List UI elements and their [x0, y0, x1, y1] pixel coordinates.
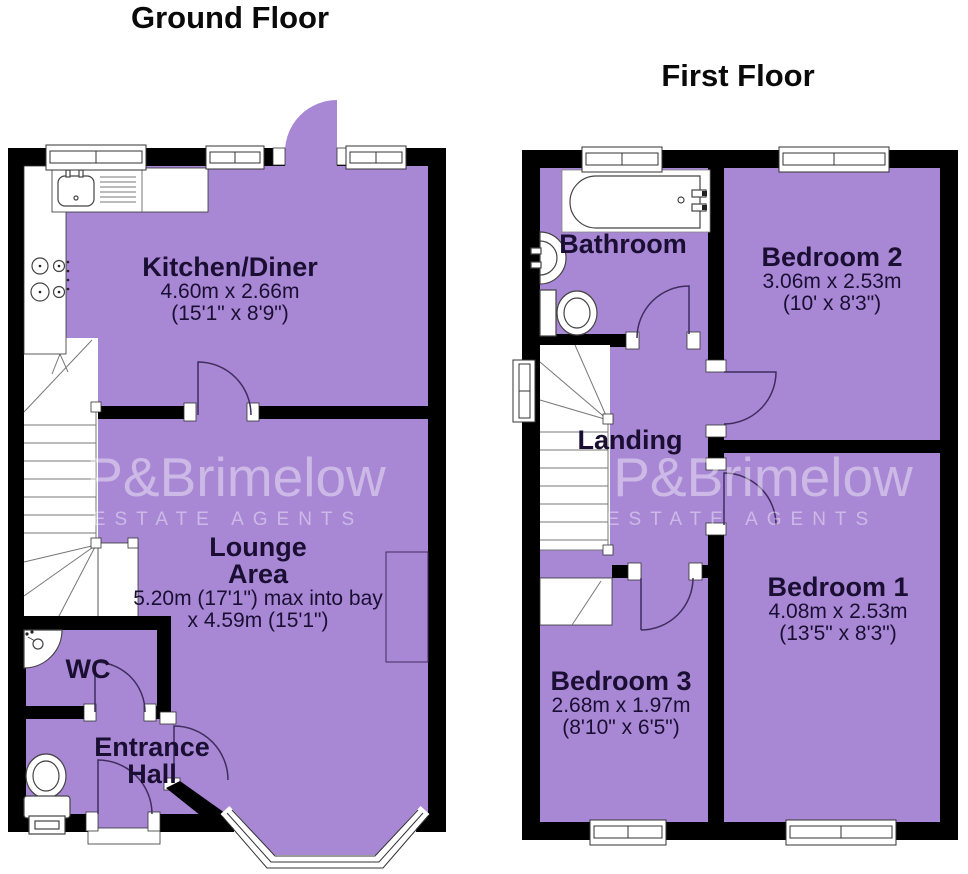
first-stair-newel-bottom — [603, 545, 613, 555]
back-door-jamb-left — [273, 148, 285, 165]
room-label-landing: Landing — [578, 427, 683, 454]
stair-side-window — [513, 360, 535, 422]
room-name: Bedroom 1 — [767, 574, 908, 601]
ground-stairwell — [24, 338, 98, 618]
bedroom3-door-jamb-right — [689, 563, 702, 580]
bedroom3-door-jamb-left — [628, 563, 641, 580]
room-name: Entrance — [94, 734, 210, 761]
bedroom1-window — [786, 820, 896, 845]
room-dims-metric: 3.06m x 2.53m — [761, 271, 902, 293]
room-label-kitchen: Kitchen/Diner 4.60m x 2.66m (15'1" x 8'9… — [142, 254, 318, 325]
room-name-line2: Hall — [94, 761, 210, 788]
bathtub-fixture — [562, 170, 710, 232]
room-dims-metric: 5.20m (17'1") max into bay — [133, 588, 383, 610]
bedroom3-wall-top-left — [612, 565, 628, 578]
ground-window-3 — [346, 146, 406, 169]
room-dims-metric: 4.08m x 2.53m — [767, 601, 908, 623]
bathroom-window — [582, 147, 662, 172]
room-dims-imperial: x 4.59m (15'1") — [133, 610, 383, 632]
room-label-bedroom1: Bedroom 1 4.08m x 2.53m (13'5" x 8'3") — [767, 574, 908, 645]
wc-door-jamb-right — [144, 704, 156, 721]
room-name: Bedroom 2 — [761, 244, 902, 271]
room-label-wc: WC — [66, 656, 111, 683]
stair-newel-bottom — [91, 538, 101, 548]
room-label-lounge: Lounge Area 5.20m (17'1") max into bay x… — [133, 534, 383, 632]
room-dims-imperial: (15'1" x 8'9") — [142, 303, 318, 325]
ground-floor-title: Ground Floor — [131, 0, 329, 36]
room-name: Kitchen/Diner — [142, 254, 318, 281]
kitchen-divider-wall-left — [96, 406, 186, 419]
room-label-bedroom3: Bedroom 3 2.68m x 1.97m (8'10" x 6'5") — [550, 668, 691, 739]
bedroom2-window — [779, 147, 889, 172]
ground-wall-left — [8, 148, 26, 832]
bedroom2-door-jamb-bottom — [706, 425, 726, 437]
stair-newel-top — [91, 402, 101, 412]
bedroom1-door-jamb-top — [706, 458, 726, 470]
room-name: Bathroom — [559, 231, 687, 258]
hall-door-jamb-top — [160, 712, 176, 724]
kitchen-door-jamb-right — [247, 403, 259, 421]
first-floor-title: First Floor — [661, 58, 814, 94]
understair-cupboard — [98, 543, 138, 618]
floorplan-canvas: Ground Floor First Floor P&Brimelow ESTA… — [0, 0, 968, 874]
room-label-bedroom2: Bedroom 2 3.06m x 2.53m (10' x 8'3") — [761, 244, 902, 315]
first-stair-newel-top — [603, 414, 613, 424]
back-door-swing — [285, 100, 337, 152]
bedroom1-door-jamb-bottom — [706, 523, 726, 535]
stair-bulkhead — [540, 578, 612, 625]
room-dims-metric: 2.68m x 1.97m — [550, 695, 691, 717]
bedroom2-door-jamb-top — [706, 360, 726, 372]
room-name: WC — [66, 656, 111, 683]
first-wall-right — [940, 150, 958, 840]
landing-bedroom2-wall — [708, 168, 724, 372]
kitchen-window — [46, 145, 146, 170]
bathroom-door-jamb-right — [687, 332, 700, 349]
ground-wall-right — [428, 148, 446, 816]
front-door-jamb-left — [86, 812, 98, 831]
room-name-line2: Area — [133, 561, 383, 588]
room-dims-imperial: (8'10" x 6'5") — [550, 717, 691, 739]
kitchen-door-jamb-left — [184, 403, 196, 421]
wc-wall-bottom-left — [24, 706, 84, 719]
wc-door-jamb-left — [84, 704, 96, 721]
bedroom3-window — [590, 820, 666, 845]
room-name: Lounge — [133, 534, 383, 561]
bedroom3-bedroom1-wall — [708, 535, 724, 822]
room-label-entrance-hall: Entrance Hall — [94, 734, 210, 788]
bathroom-toilet-fixture — [540, 290, 597, 336]
room-dims-metric: 4.60m x 2.66m — [142, 281, 318, 303]
front-door-jamb-right — [148, 812, 160, 831]
room-dims-imperial: (13'5" x 8'3") — [767, 623, 908, 645]
room-name: Bedroom 3 — [550, 668, 691, 695]
ground-window-2 — [206, 146, 264, 169]
room-name: Landing — [578, 427, 683, 454]
kitchen-divider-wall-right — [259, 406, 428, 419]
bedroom2-bedroom1-wall — [724, 440, 940, 453]
ground-floor-plan — [8, 100, 446, 868]
room-label-bathroom: Bathroom — [559, 231, 687, 258]
room-dims-imperial: (10' x 8'3") — [761, 293, 902, 315]
